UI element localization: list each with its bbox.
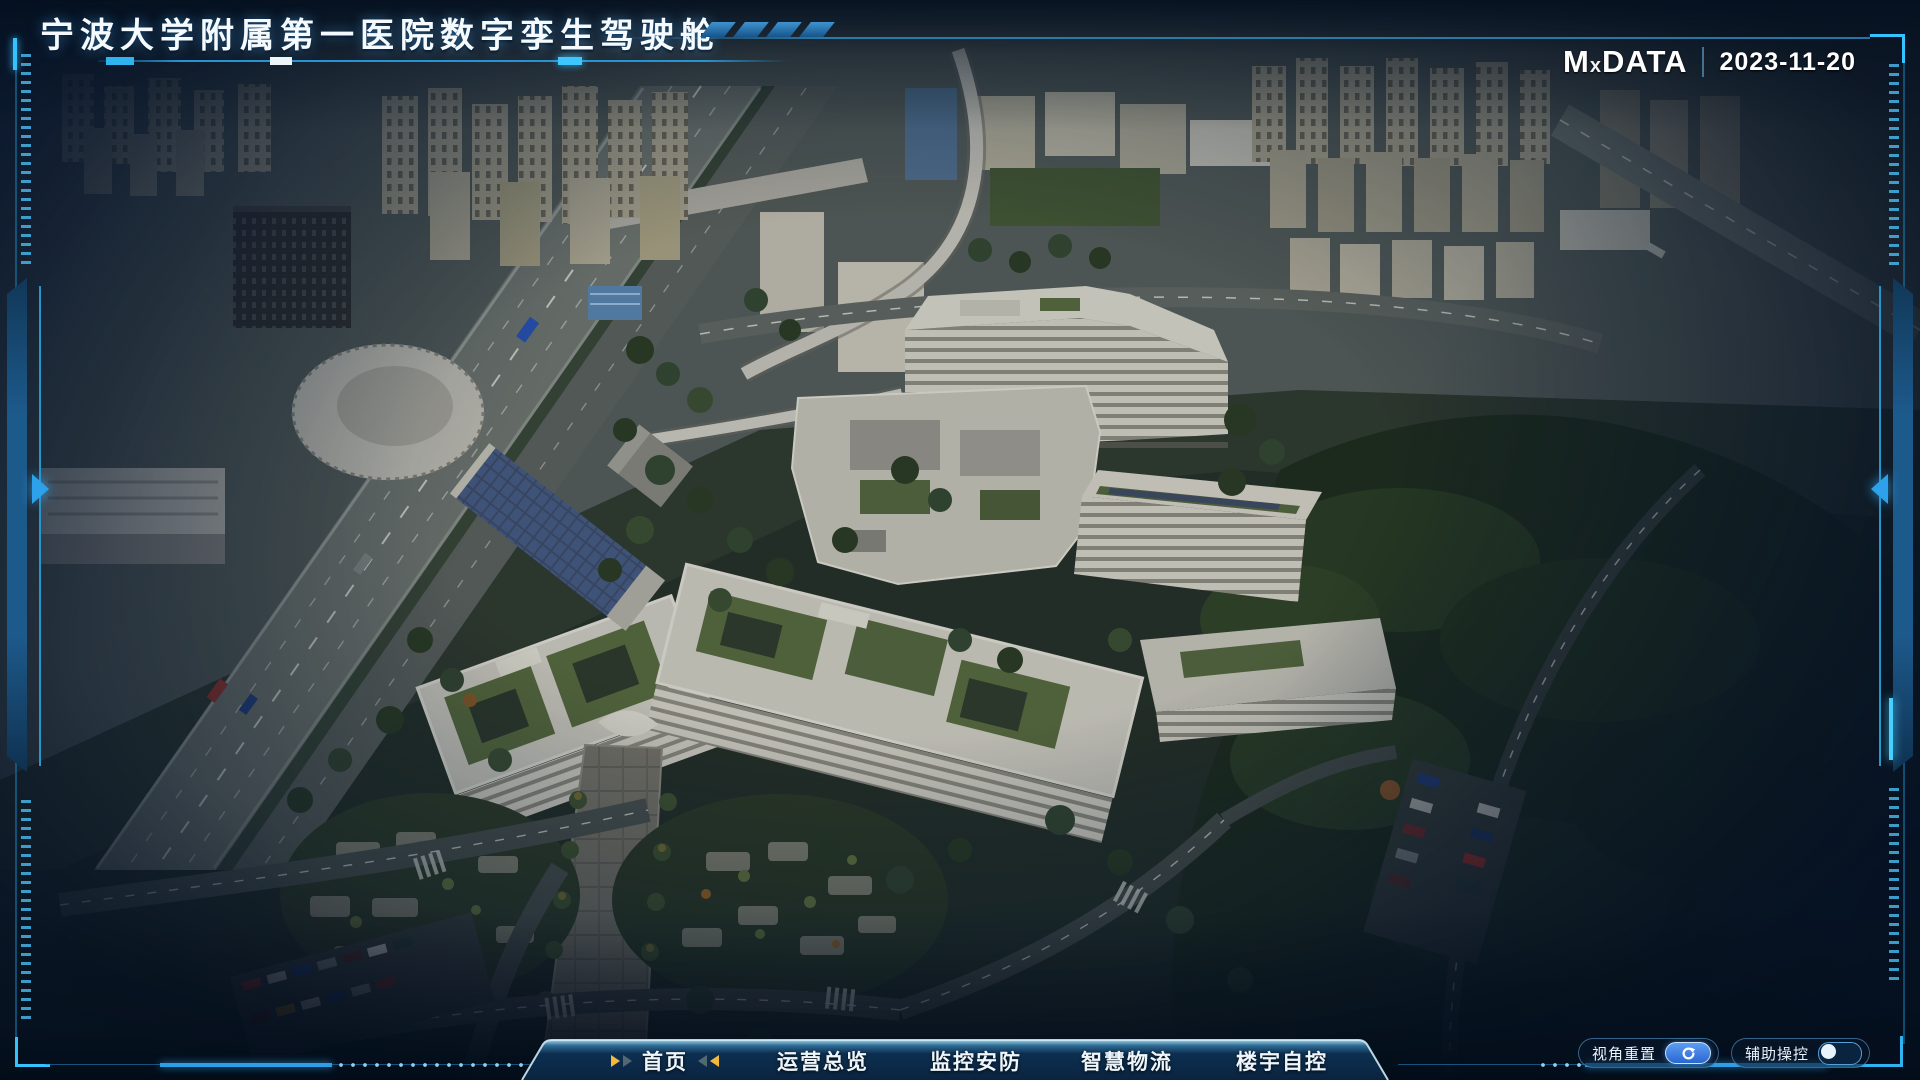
brand-block: MxDATA 2023-11-20 bbox=[1563, 44, 1856, 80]
bottom-nav: 首页 运营总览 监控安防 智慧物流 楼宇自控 bbox=[512, 1038, 1398, 1080]
title-underline bbox=[98, 60, 788, 62]
date-display: 2023-11-20 bbox=[1719, 48, 1856, 77]
digital-twin-dashboard: 宁波大学附属第一医院数字孪生驾驶舱 MxDATA 2023-11-20 bbox=[0, 0, 1920, 1080]
assist-control-group: 辅助操控 bbox=[1731, 1038, 1870, 1068]
assist-control-label: 辅助操控 bbox=[1745, 1043, 1809, 1064]
assist-toggle-knob bbox=[1821, 1044, 1836, 1059]
campus-aerial-render bbox=[0, 0, 1920, 1080]
white-office-slab bbox=[40, 468, 225, 564]
tab-security-monitoring[interactable]: 监控安防 bbox=[930, 1046, 1022, 1076]
tab-smart-logistics[interactable]: 智慧物流 bbox=[1081, 1046, 1173, 1076]
brand-divider bbox=[1702, 47, 1704, 77]
reset-view-group: 视角重置 bbox=[1578, 1038, 1719, 1068]
tab-home-label: 首页 bbox=[642, 1046, 688, 1076]
underline-square-white bbox=[270, 57, 292, 65]
hospital-podium bbox=[792, 386, 1100, 584]
pan-right-arrow-icon[interactable] bbox=[1871, 474, 1888, 504]
reset-view-label: 视角重置 bbox=[1592, 1043, 1656, 1064]
assist-toggle[interactable] bbox=[1818, 1042, 1862, 1065]
tab-home-right-arrows-icon bbox=[698, 1055, 719, 1067]
reset-view-button[interactable] bbox=[1665, 1042, 1711, 1064]
tab-building-automation[interactable]: 楼宇自控 bbox=[1236, 1046, 1328, 1076]
view-controls: 视角重置 辅助操控 bbox=[1578, 1038, 1870, 1068]
brand-logo: MxDATA bbox=[1563, 44, 1687, 80]
pan-left-arrow-icon[interactable] bbox=[32, 474, 49, 504]
tab-operations-overview[interactable]: 运营总览 bbox=[777, 1046, 869, 1076]
underline-square-bright bbox=[558, 57, 582, 65]
page-title: 宁波大学附属第一医院数字孪生驾驶舱 bbox=[40, 8, 720, 57]
tab-home[interactable]: 首页 bbox=[611, 1046, 719, 1076]
tab-home-left-arrows-icon bbox=[611, 1055, 632, 1067]
title-slashes-decoration bbox=[706, 22, 829, 37]
3d-campus-viewport[interactable] bbox=[0, 0, 1920, 1080]
rotate-reset-icon bbox=[1681, 1046, 1696, 1061]
underline-square-cyan bbox=[106, 57, 134, 65]
